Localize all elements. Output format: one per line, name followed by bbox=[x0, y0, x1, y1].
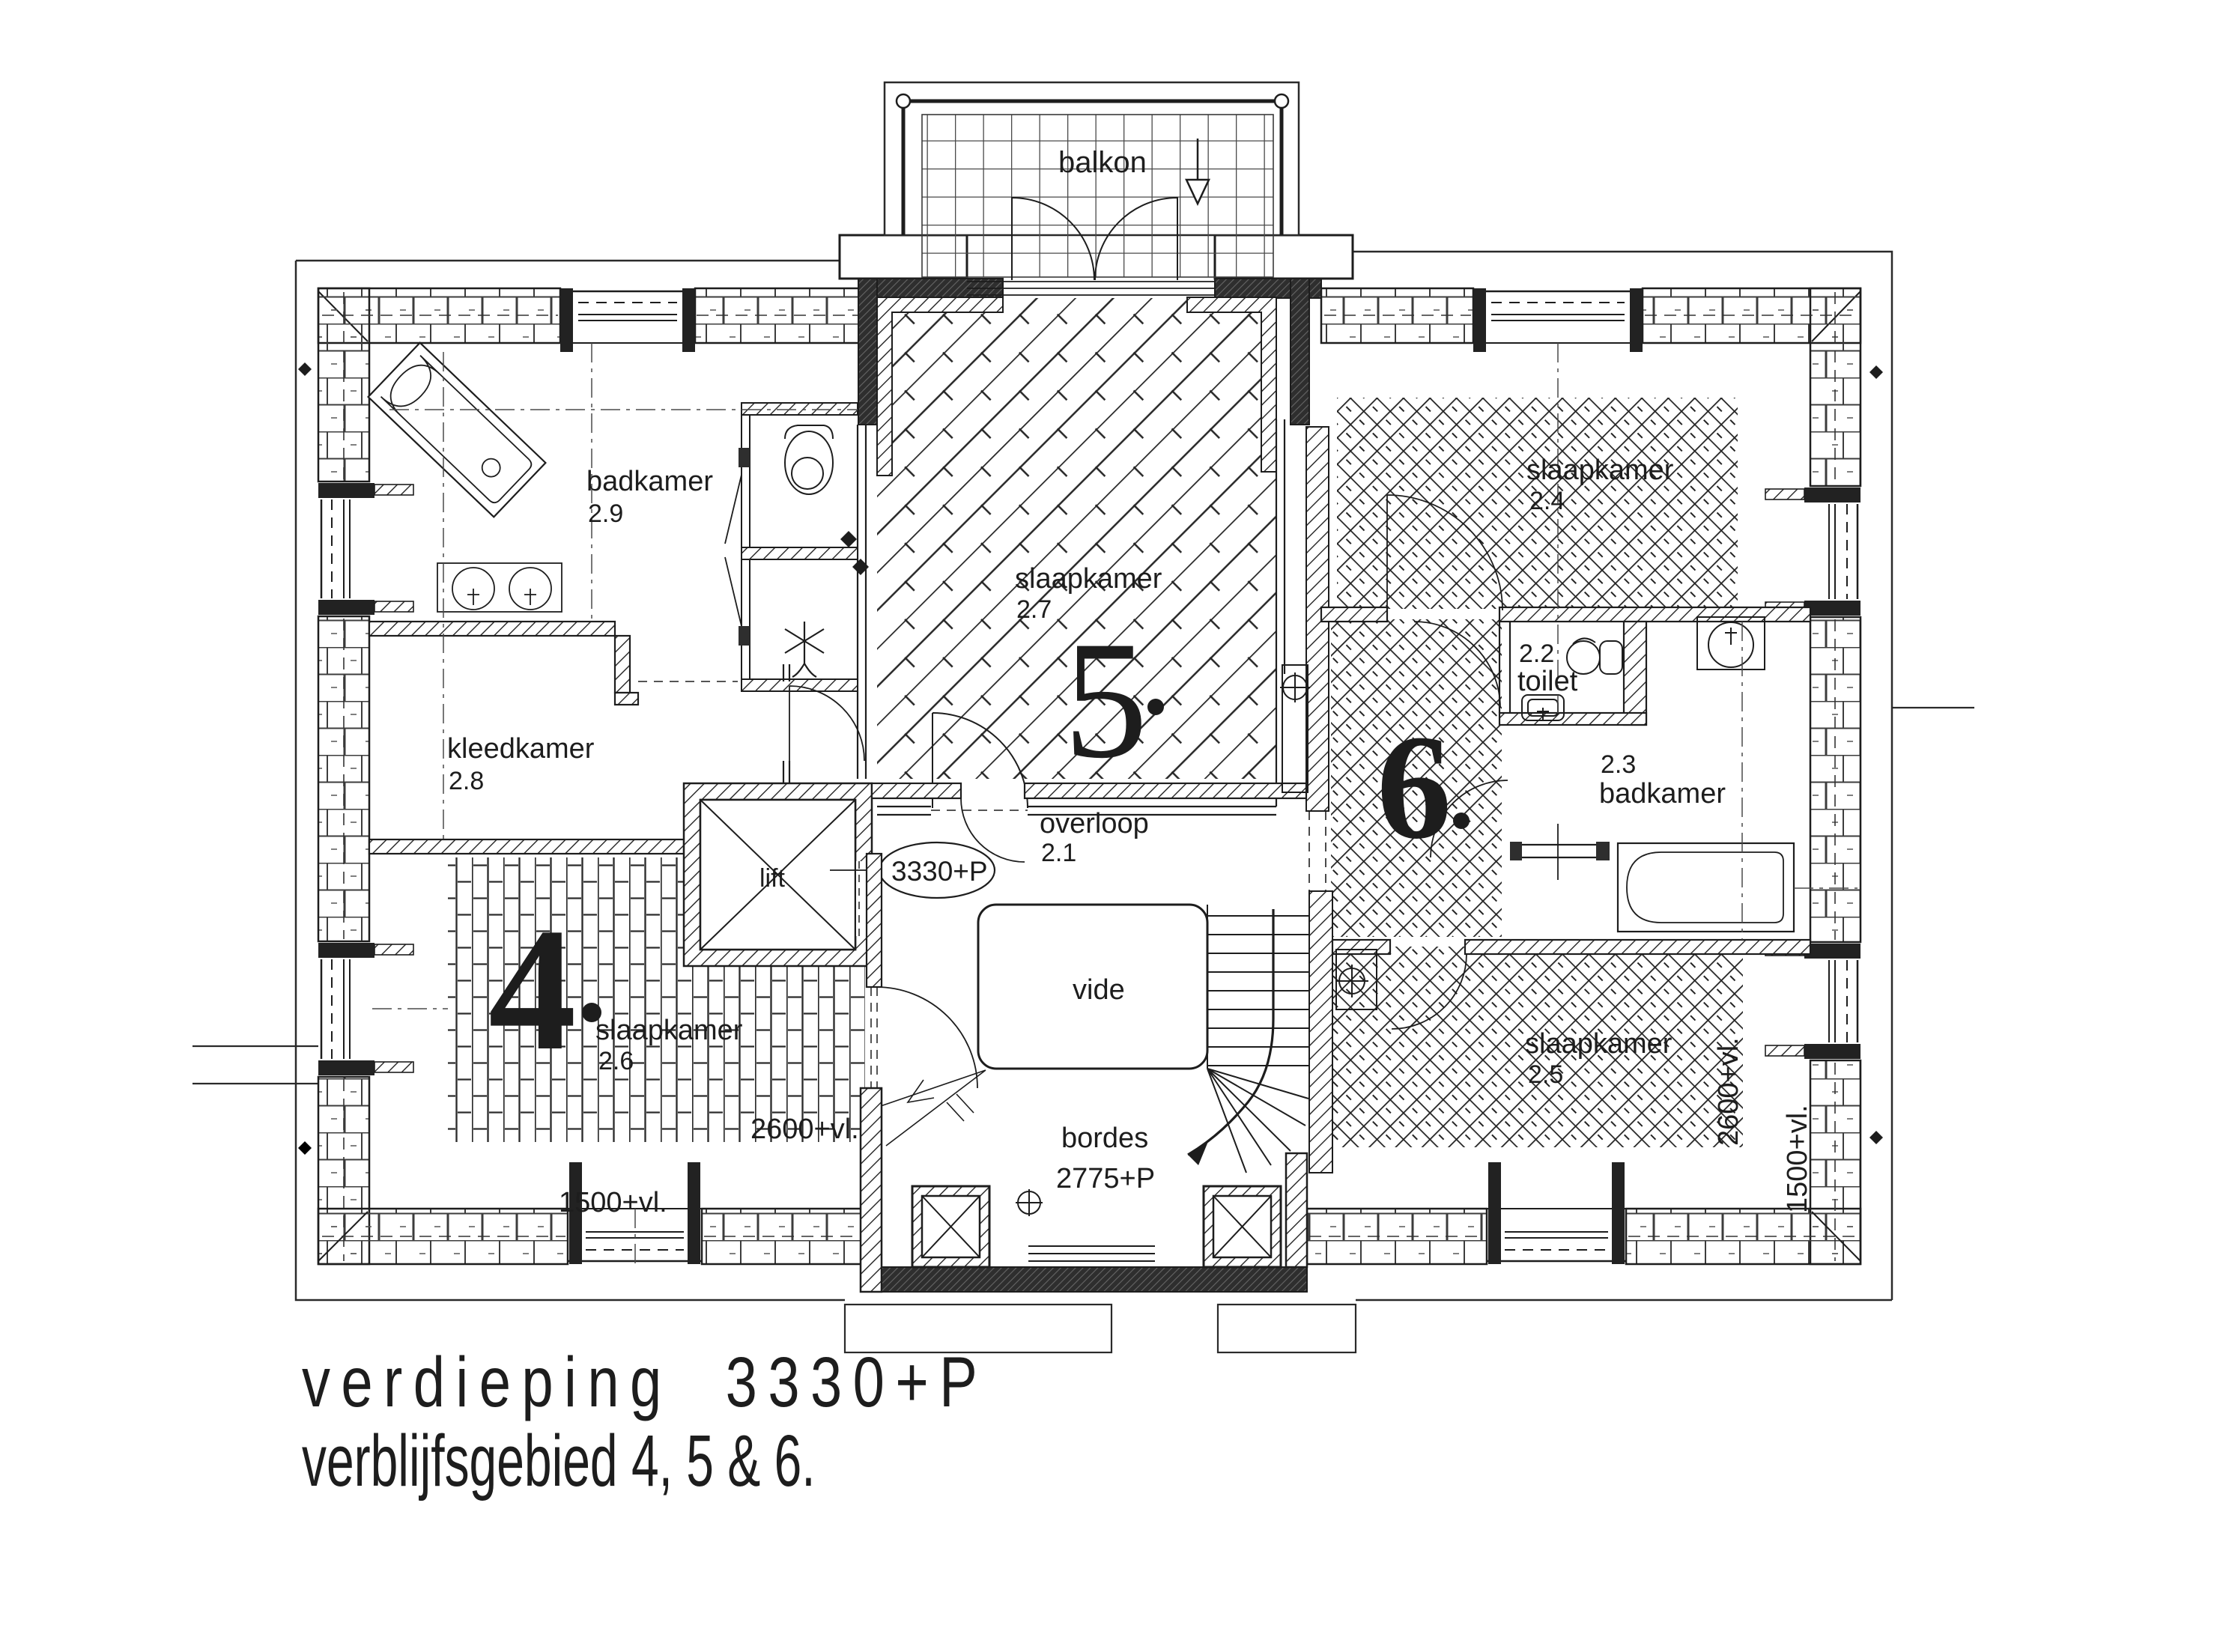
svg-text:2.2: 2.2 bbox=[1519, 640, 1554, 668]
svg-text:2600+vl.: 2600+vl. bbox=[1713, 1037, 1744, 1146]
svg-text:overloop: overloop bbox=[1040, 808, 1149, 839]
svg-text:badkamer: badkamer bbox=[1599, 778, 1726, 810]
svg-text:2.7: 2.7 bbox=[1016, 595, 1052, 624]
svg-text:1500+vl.: 1500+vl. bbox=[1782, 1105, 1813, 1213]
svg-text:4: 4 bbox=[488, 892, 577, 1087]
svg-text:slaapkamer: slaapkamer bbox=[1526, 455, 1674, 486]
svg-text:2.9: 2.9 bbox=[588, 499, 623, 528]
svg-text:vide: vide bbox=[1073, 974, 1125, 1006]
svg-text:verdieping 3330+P: verdieping 3330+P bbox=[302, 1343, 988, 1422]
svg-text:bordes: bordes bbox=[1061, 1123, 1148, 1154]
svg-text:5: 5 bbox=[1064, 606, 1148, 793]
svg-text:slaapkamer: slaapkamer bbox=[1015, 563, 1162, 595]
svg-text:1500+vl.: 1500+vl. bbox=[559, 1187, 667, 1218]
svg-text:slaapkamer: slaapkamer bbox=[595, 1015, 743, 1046]
svg-text:2.1: 2.1 bbox=[1041, 839, 1076, 867]
svg-text:kleedkamer: kleedkamer bbox=[447, 733, 595, 765]
svg-text:2.6: 2.6 bbox=[598, 1047, 634, 1075]
svg-text:lift: lift bbox=[759, 864, 786, 893]
svg-text:2.4: 2.4 bbox=[1529, 487, 1565, 515]
svg-text:verblijfsgebied 4, 5 & 6.: verblijfsgebied 4, 5 & 6. bbox=[302, 1420, 816, 1501]
svg-text:2.8: 2.8 bbox=[449, 767, 484, 795]
svg-text:6: 6 bbox=[1377, 705, 1452, 870]
svg-text:toilet: toilet bbox=[1517, 666, 1578, 697]
svg-text:2600+vl.: 2600+vl. bbox=[750, 1114, 859, 1145]
svg-text:2.5: 2.5 bbox=[1528, 1060, 1563, 1089]
svg-text:slaapkamer: slaapkamer bbox=[1525, 1028, 1672, 1060]
svg-text:balkon: balkon bbox=[1058, 146, 1147, 179]
svg-text:2775+P: 2775+P bbox=[1056, 1163, 1155, 1194]
svg-text:badkamer: badkamer bbox=[586, 466, 713, 497]
svg-text:2.3: 2.3 bbox=[1601, 750, 1636, 779]
svg-text:3330+P: 3330+P bbox=[891, 856, 988, 887]
